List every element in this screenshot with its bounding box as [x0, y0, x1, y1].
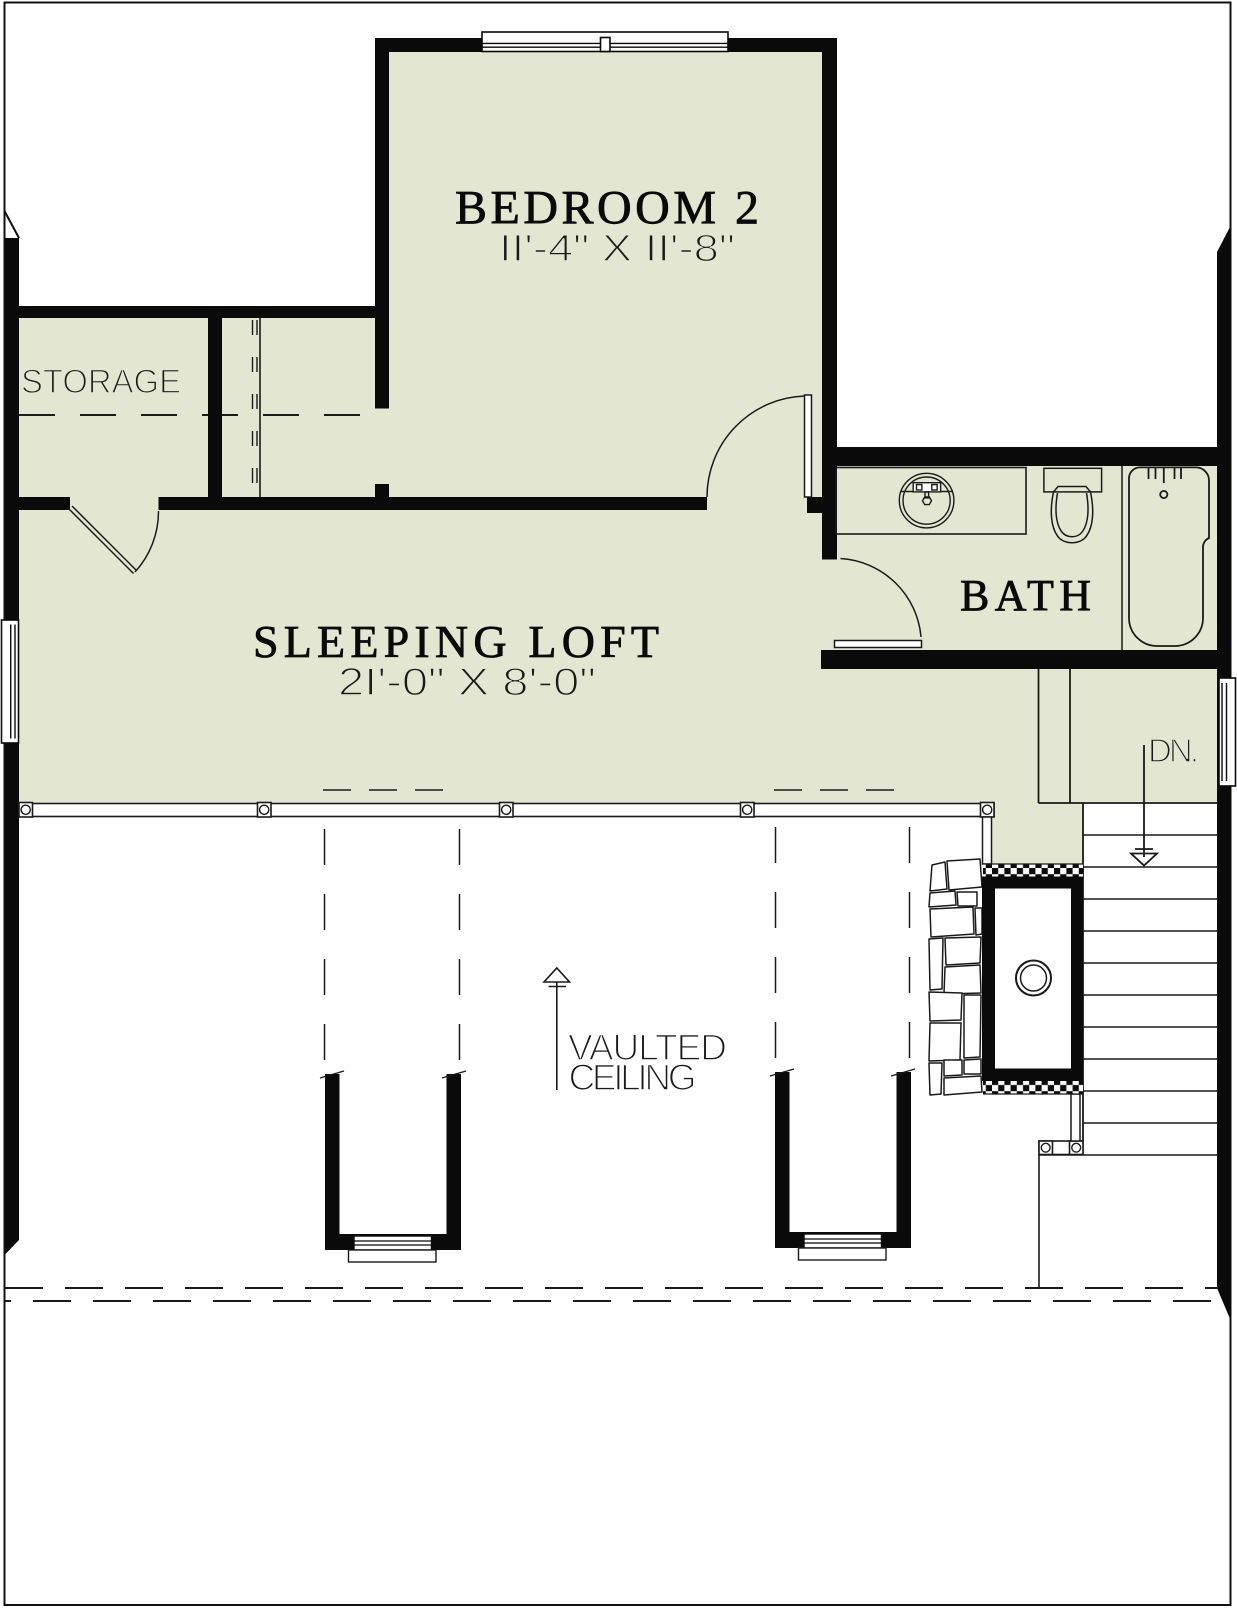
svg-text:II'-4" X II'-8": II'-4" X II'-8": [499, 228, 735, 270]
svg-text:DN.: DN.: [1148, 732, 1202, 769]
svg-text:STORAGE: STORAGE: [21, 363, 181, 401]
svg-text:BEDROOM 2: BEDROOM 2: [455, 182, 759, 235]
svg-text:2I'-0" X 8'-0": 2I'-0" X 8'-0": [338, 661, 596, 704]
svg-text:CEILING: CEILING: [569, 1057, 699, 1098]
